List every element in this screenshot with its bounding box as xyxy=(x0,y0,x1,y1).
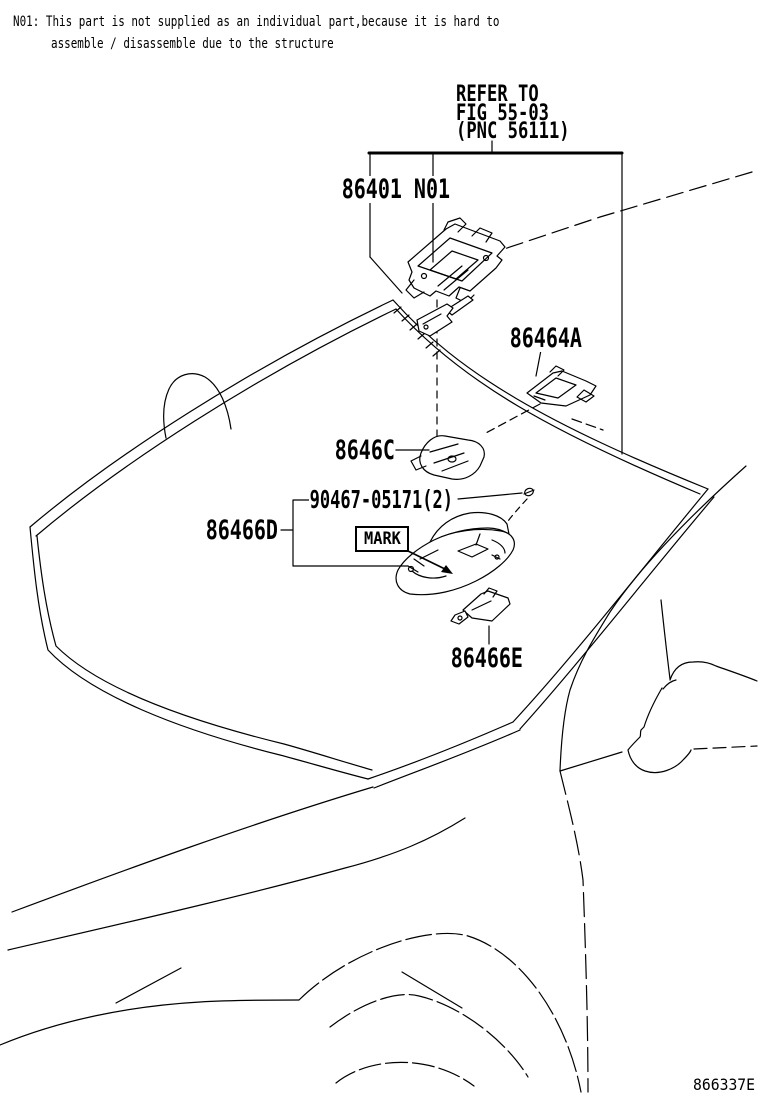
refer-to-line-3: (PNC 56111) xyxy=(456,123,570,142)
note-line-1: N01: This part is not supplied as an ind… xyxy=(13,14,500,30)
figure-code: 866337E xyxy=(693,1076,755,1094)
mark-tag-box: MARK xyxy=(355,526,409,552)
label-90467-05171: 90467-05171(2) xyxy=(309,487,454,512)
label-8646c: 8646C xyxy=(334,437,396,464)
label-86464a: 86464A xyxy=(509,325,583,352)
screw-90467-drawing xyxy=(523,487,534,497)
sensor-8646c-drawing xyxy=(411,436,484,480)
wedge-bracket-drawing xyxy=(417,296,473,336)
car-body-outline xyxy=(0,466,746,1092)
note-line-2: assemble / disassemble due to the struct… xyxy=(51,36,334,52)
camera-bracket-86401-drawing xyxy=(406,218,505,303)
side-mirror xyxy=(628,600,757,773)
mark-tag-label: MARK xyxy=(364,529,401,549)
car-diagram xyxy=(0,0,760,1112)
wheel-arch xyxy=(299,933,581,1092)
parts-diagram-page: N01: This part is not supplied as an ind… xyxy=(0,0,760,1112)
bracket-86466e-drawing xyxy=(451,588,510,624)
refer-to-block: REFER TO FIG 55-03 (PNC 56111) xyxy=(456,86,570,142)
label-86466e: 86466E xyxy=(450,645,524,672)
mirror-housing-outline xyxy=(164,374,231,438)
label-86401-n01: 86401 N01 xyxy=(341,176,451,203)
label-86466d: 86466D xyxy=(205,517,279,544)
